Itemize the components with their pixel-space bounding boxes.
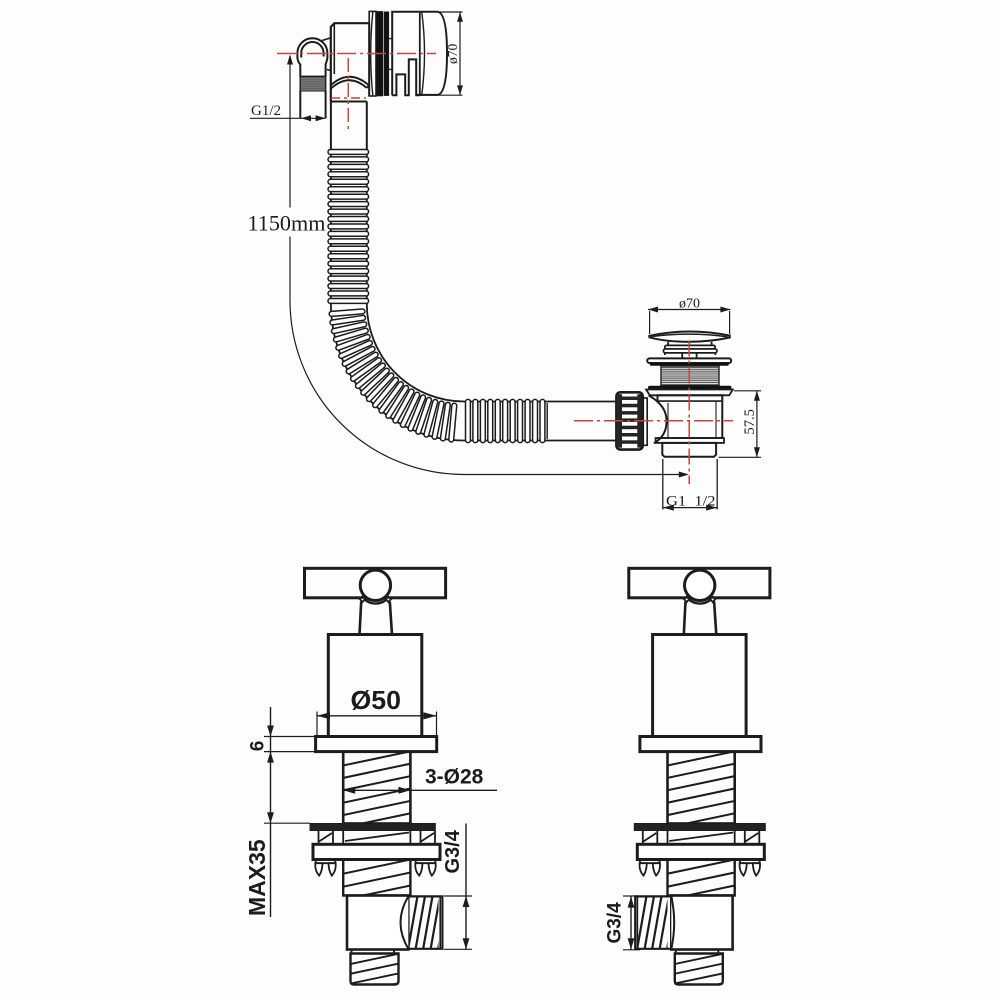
svg-text:G3/4: G3/4 — [605, 902, 626, 944]
svg-text:MAX35: MAX35 — [244, 839, 270, 916]
svg-text:G1/2: G1/2 — [251, 103, 281, 119]
svg-text:57.5: 57.5 — [742, 409, 758, 434]
svg-text:G1 1/2: G1 1/2 — [666, 494, 716, 510]
svg-text:Ø50: Ø50 — [351, 685, 402, 715]
svg-text:ø70: ø70 — [445, 44, 460, 65]
svg-text:1150mm: 1150mm — [248, 211, 326, 236]
svg-text:G3/4: G3/4 — [442, 829, 464, 873]
svg-text:6: 6 — [248, 741, 269, 752]
svg-text:3-Ø28: 3-Ø28 — [425, 766, 484, 789]
